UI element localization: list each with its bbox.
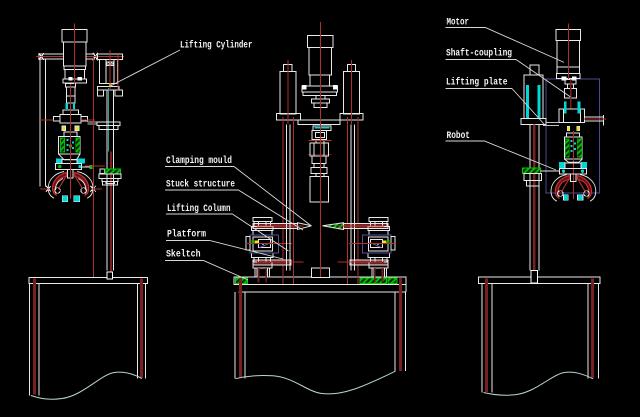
- svg-text:Platform: Platform: [167, 229, 206, 241]
- svg-text:Clamping mould: Clamping mould: [166, 155, 232, 167]
- svg-text:Lifting Cylinder: Lifting Cylinder: [180, 40, 253, 52]
- svg-text:Stuck structure: Stuck structure: [166, 178, 235, 190]
- svg-text:Skeltch: Skeltch: [166, 249, 201, 261]
- svg-text:Robot: Robot: [447, 130, 471, 142]
- svg-text:Shaft-coupling: Shaft-coupling: [446, 47, 512, 59]
- svg-text:Lifting plate: Lifting plate: [446, 76, 508, 88]
- svg-text:Motor: Motor: [447, 16, 470, 28]
- svg-text:Lifting Column: Lifting Column: [167, 203, 231, 215]
